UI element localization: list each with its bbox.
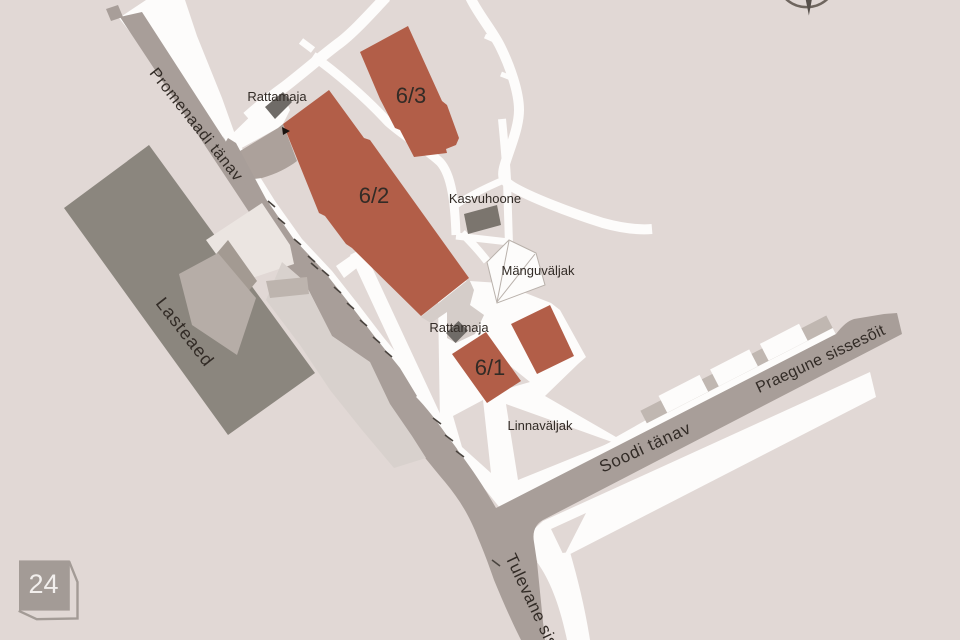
svg-text:Rattamaja: Rattamaja bbox=[429, 320, 489, 335]
svg-text:6/1: 6/1 bbox=[475, 355, 506, 380]
svg-text:Linnaväljak: Linnaväljak bbox=[507, 418, 573, 433]
svg-text:Mänguväljak: Mänguväljak bbox=[502, 263, 575, 278]
svg-text:Kasvuhoone: Kasvuhoone bbox=[449, 191, 521, 206]
svg-text:Rattamaja: Rattamaja bbox=[247, 89, 307, 104]
svg-text:6/3: 6/3 bbox=[396, 83, 427, 108]
svg-text:6/2: 6/2 bbox=[359, 183, 390, 208]
svg-text:24: 24 bbox=[28, 569, 58, 599]
